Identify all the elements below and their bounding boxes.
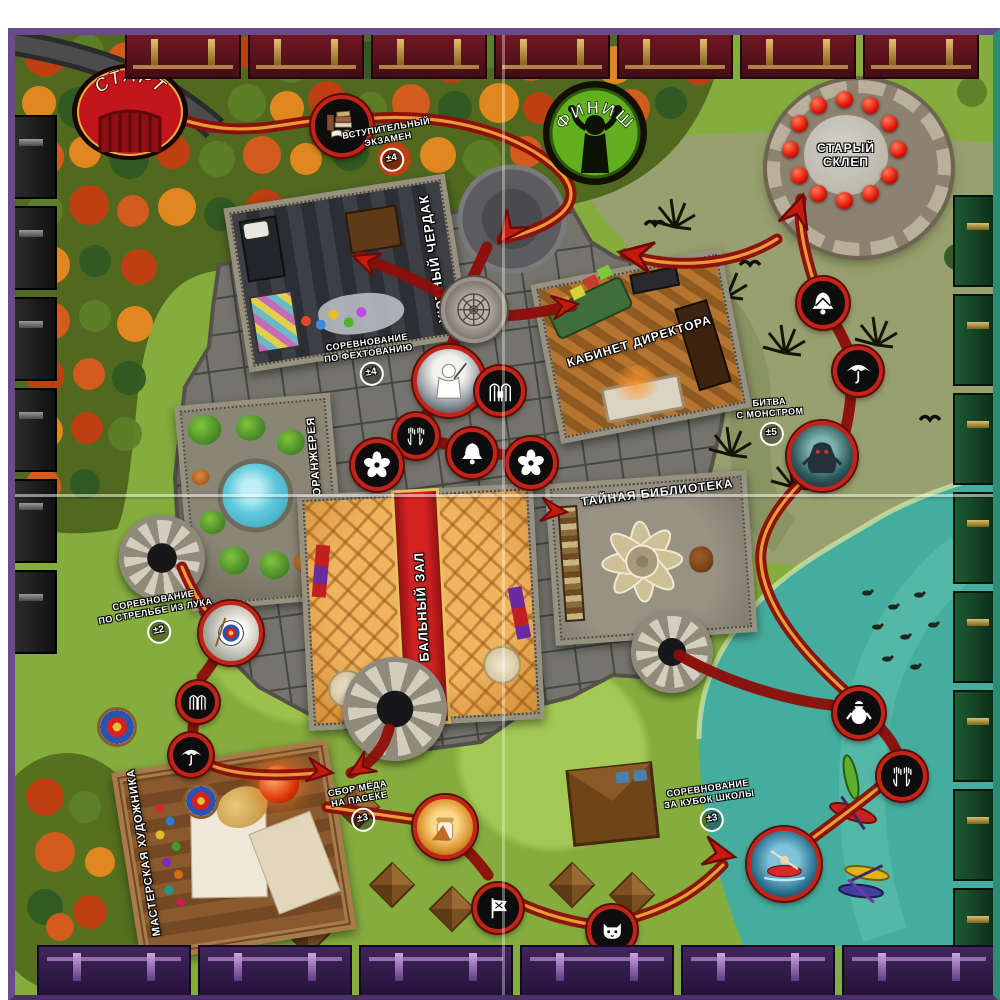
card-slots-top (125, 35, 979, 79)
space-bell-east[interactable] (797, 277, 849, 329)
label-honey: СБОР МЁДА НА ПАСЕКЕ ±3 (327, 778, 394, 836)
space-honey[interactable] (413, 795, 477, 859)
value-badge: ±2 (145, 617, 173, 645)
practice-target (183, 783, 219, 819)
finish-badge[interactable]: ФИНИШ (539, 77, 651, 189)
value-badge: ±5 (759, 421, 785, 447)
label-monster-battle: БИТВА С МОНСТРОМ ±5 (735, 395, 805, 448)
value-badge: ±3 (349, 805, 377, 833)
flag-icon (484, 894, 513, 923)
bell-icon (808, 288, 838, 318)
hands-icon (403, 423, 429, 449)
space-bell[interactable] (447, 428, 497, 478)
card-slots-bottom (37, 945, 996, 995)
card-slots-left (15, 115, 57, 654)
umbrella-icon (844, 357, 873, 386)
space-fencing[interactable] (413, 345, 485, 417)
bell-icon (458, 439, 487, 468)
monster-photo (801, 435, 843, 477)
board-game-photo: { "board": { "start_label": "СТАРТ", "fi… (0, 0, 1000, 1000)
space-flag[interactable] (473, 883, 523, 933)
space-penguin[interactable] (833, 687, 885, 739)
space-gates-west[interactable] (177, 681, 219, 723)
flower-icon (516, 448, 546, 478)
card-slots-right (953, 195, 993, 980)
value-badge: ±4 (378, 145, 406, 173)
space-gates[interactable] (475, 366, 525, 416)
rosette-ornament (454, 290, 493, 329)
cat-icon (598, 916, 627, 945)
flower-icon (362, 450, 392, 480)
fold-crease-vertical (502, 35, 505, 995)
kayak-photo (762, 842, 807, 887)
space-hands-east[interactable] (877, 751, 927, 801)
hands-icon (888, 762, 917, 791)
space-umbrella-east[interactable] (833, 346, 883, 396)
space-flower-left[interactable] (351, 439, 403, 491)
gates-icon (486, 377, 515, 406)
gates-icon (186, 690, 209, 713)
umbrella-icon (179, 743, 203, 767)
game-board: УЮТНЫЙ ЧЕРДАК КАБИНЕТ ДИРЕКТОРА ЦВЕТОЧНА… (8, 28, 1000, 1000)
space-school-cup[interactable] (747, 827, 821, 901)
space-rosette[interactable] (441, 277, 507, 343)
fencer-photo (427, 359, 471, 403)
space-flower-right[interactable] (505, 437, 557, 489)
space-umbrella-west[interactable] (169, 733, 213, 777)
value-badge: ±3 (699, 806, 726, 833)
value-badge: ±4 (358, 360, 385, 387)
practice-target (97, 707, 137, 747)
penguin-icon (844, 698, 874, 728)
gate-icon (100, 110, 160, 152)
honey-jar-photo (426, 808, 464, 846)
